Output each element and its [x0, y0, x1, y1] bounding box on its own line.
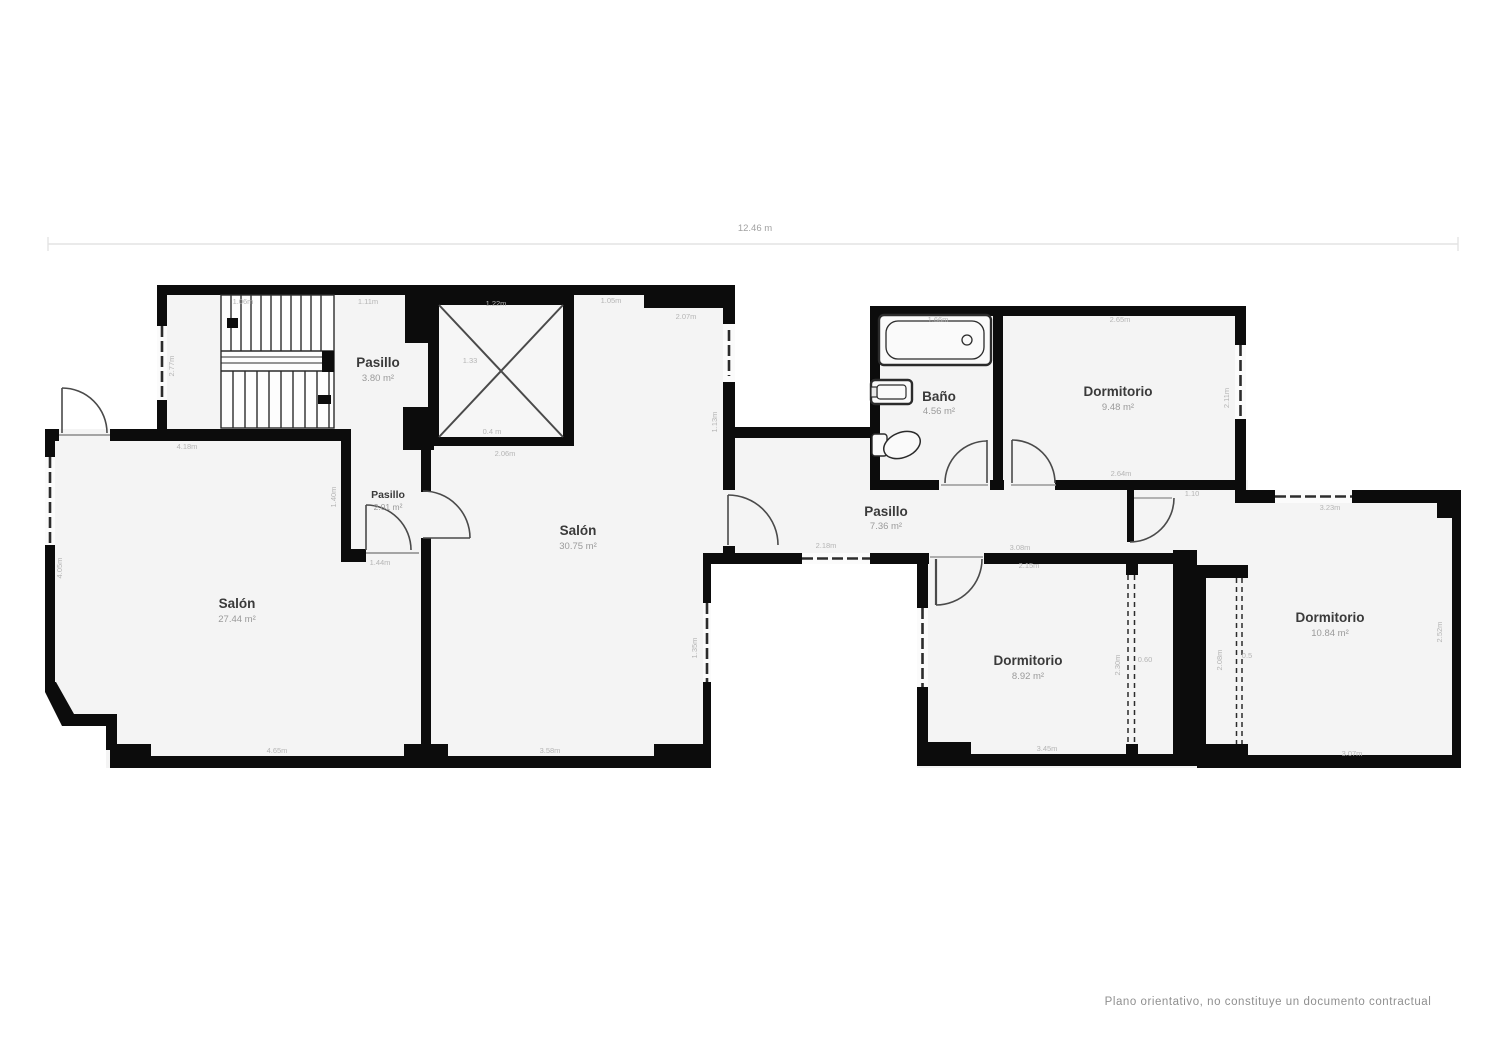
svg-text:2.65m: 2.65m: [1110, 315, 1131, 324]
svg-text:8.92 m²: 8.92 m²: [1012, 671, 1044, 682]
svg-text:1.11m: 1.11m: [358, 297, 378, 306]
svg-text:Baño: Baño: [922, 389, 956, 404]
svg-text:2.77m: 2.77m: [167, 356, 176, 377]
svg-text:4.56 m²: 4.56 m²: [923, 406, 955, 417]
svg-text:2.08m: 2.08m: [1215, 650, 1224, 671]
svg-text:2.52m: 2.52m: [1435, 622, 1444, 643]
svg-text:1.35m: 1.35m: [690, 638, 699, 659]
svg-text:3.45m: 3.45m: [1037, 744, 1058, 753]
svg-text:2.06m: 2.06m: [495, 449, 516, 458]
svg-text:27.44 m²: 27.44 m²: [218, 614, 256, 625]
svg-text:Pasillo: Pasillo: [371, 489, 405, 501]
svg-text:1.66m: 1.66m: [928, 315, 949, 324]
svg-text:1.05m: 1.05m: [601, 296, 622, 305]
svg-text:Salón: Salón: [560, 523, 597, 538]
svg-text:30.75 m²: 30.75 m²: [559, 541, 597, 552]
svg-text:7.36 m²: 7.36 m²: [870, 521, 902, 532]
svg-text:2.01 m²: 2.01 m²: [374, 502, 403, 512]
svg-text:3.07m: 3.07m: [1342, 749, 1363, 758]
svg-text:Pasillo: Pasillo: [864, 504, 908, 519]
svg-text:4.05m: 4.05m: [55, 558, 64, 579]
svg-text:1.06m: 1.06m: [233, 297, 254, 306]
svg-text:0.5: 0.5: [1242, 651, 1252, 660]
svg-text:0.4 m: 0.4 m: [483, 427, 502, 436]
svg-text:3.23m: 3.23m: [1320, 503, 1341, 512]
svg-text:Salón: Salón: [219, 596, 256, 611]
svg-text:1.33: 1.33: [463, 356, 478, 365]
svg-text:Dormitorio: Dormitorio: [1084, 384, 1153, 399]
svg-text:Pasillo: Pasillo: [356, 355, 400, 370]
svg-text:9.48 m²: 9.48 m²: [1102, 402, 1134, 413]
svg-text:2.30m: 2.30m: [1113, 655, 1122, 676]
svg-text:2.11m: 2.11m: [1222, 388, 1231, 408]
svg-text:2.18m: 2.18m: [816, 541, 837, 550]
svg-text:1.40m: 1.40m: [329, 487, 338, 508]
svg-text:1.44m: 1.44m: [370, 558, 391, 567]
svg-text:4.18m: 4.18m: [177, 442, 198, 451]
svg-text:3.58m: 3.58m: [540, 746, 561, 755]
svg-text:2.64m: 2.64m: [1111, 469, 1132, 478]
svg-text:1.10: 1.10: [1185, 489, 1200, 498]
svg-text:1.22m: 1.22m: [486, 299, 507, 308]
svg-text:12.46 m: 12.46 m: [738, 223, 772, 234]
svg-text:2.15m: 2.15m: [1019, 561, 1040, 570]
svg-text:Plano orientativo, no constitu: Plano orientativo, no constituye un docu…: [1105, 996, 1432, 1008]
svg-text:Dormitorio: Dormitorio: [994, 653, 1063, 668]
svg-text:1.13m: 1.13m: [710, 412, 719, 433]
svg-text:3.08m: 3.08m: [1010, 543, 1031, 552]
svg-text:10.84 m²: 10.84 m²: [1311, 628, 1349, 639]
svg-text:Dormitorio: Dormitorio: [1296, 610, 1365, 625]
svg-text:0.60: 0.60: [1138, 655, 1153, 664]
svg-text:4.65m: 4.65m: [267, 746, 288, 755]
svg-text:2.07m: 2.07m: [676, 312, 697, 321]
svg-text:3.80 m²: 3.80 m²: [362, 373, 394, 384]
